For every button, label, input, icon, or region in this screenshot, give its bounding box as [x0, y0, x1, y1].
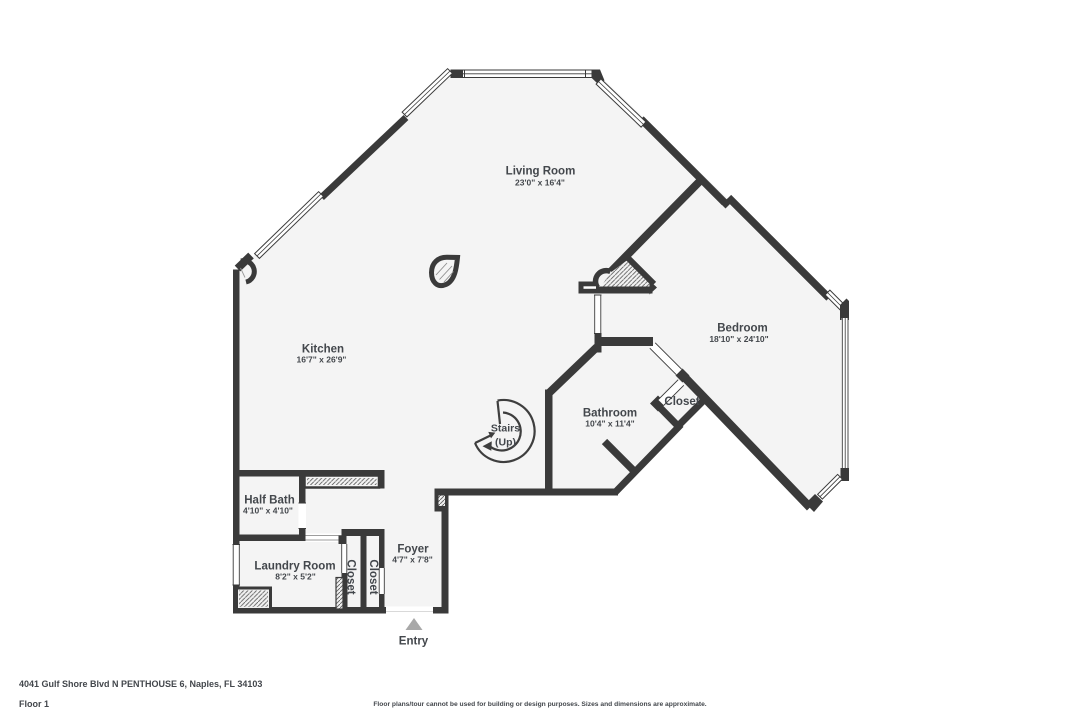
svg-text:Bedroom: Bedroom: [717, 323, 767, 335]
svg-text:4'7" x 7'8": 4'7" x 7'8": [392, 555, 432, 565]
svg-text:23'0" x 16'4": 23'0" x 16'4": [515, 178, 565, 188]
svg-text:Closet: Closet: [664, 396, 699, 408]
svg-text:16'7" x 26'9": 16'7" x 26'9": [297, 355, 347, 365]
svg-text:4'10" x 4'10": 4'10" x 4'10": [243, 506, 293, 516]
svg-text:8'2" x 5'2": 8'2" x 5'2": [275, 572, 315, 582]
svg-text:Floor 1: Floor 1: [19, 699, 49, 709]
svg-text:Entry: Entry: [399, 636, 429, 648]
svg-text:Closet: Closet: [345, 559, 357, 594]
svg-text:Stairs: Stairs: [491, 423, 520, 435]
svg-text:Floor plans/tour cannot be use: Floor plans/tour cannot be used for buil…: [373, 701, 706, 708]
svg-text:18'10" x 24'10": 18'10" x 24'10": [709, 334, 768, 344]
svg-text:4041 Gulf Shore Blvd N PENTHOU: 4041 Gulf Shore Blvd N PENTHOUSE 6, Napl…: [19, 679, 262, 689]
svg-text:10'4" x 11'4": 10'4" x 11'4": [585, 419, 634, 429]
svg-text:(Up): (Up): [495, 437, 516, 449]
svg-text:Closet: Closet: [367, 559, 379, 594]
svg-text:Living Room: Living Room: [506, 166, 576, 178]
